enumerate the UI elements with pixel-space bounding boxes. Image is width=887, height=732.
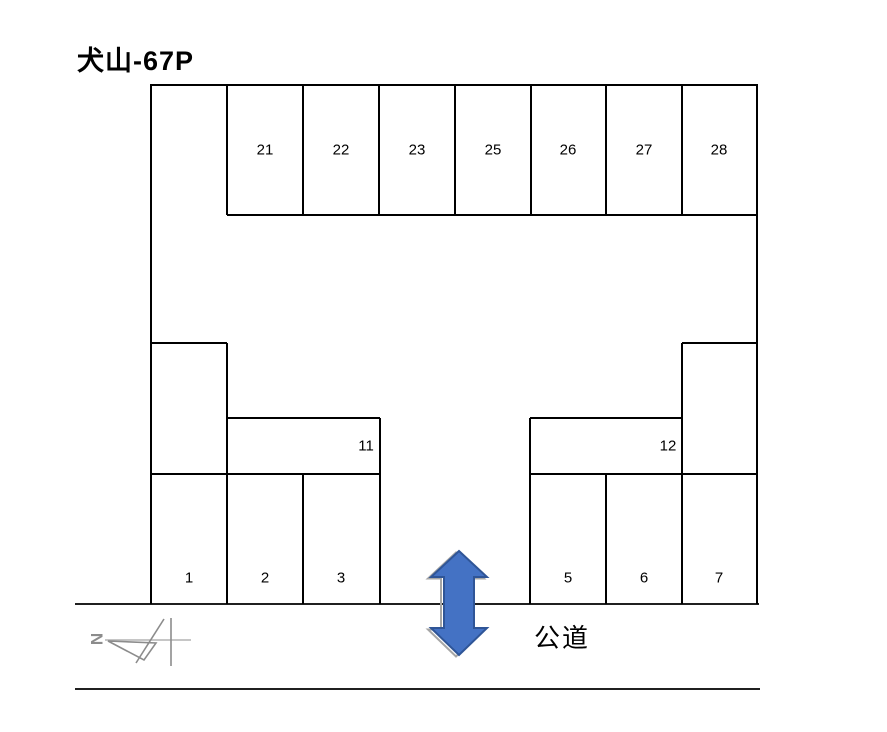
compass-north-letter: N (88, 633, 107, 645)
diagram-canvas: N (0, 0, 887, 732)
space-label-27: 27 (636, 142, 653, 159)
space-label-2: 2 (261, 570, 269, 587)
space-label-23: 23 (409, 142, 426, 159)
parking-lot-diagram: N 犬山-67P 21 22 23 25 26 27 28 11 12 1 2 … (0, 0, 887, 732)
compass-diagonal-line (136, 619, 164, 663)
road-label: 公道 (534, 618, 590, 655)
space-label-1: 1 (185, 570, 193, 587)
space-label-26: 26 (560, 142, 577, 159)
north-compass: N (88, 618, 192, 666)
space-label-28: 28 (711, 142, 728, 159)
left-block-grid (151, 343, 380, 604)
space-label-21: 21 (257, 142, 274, 159)
space-label-25: 25 (485, 142, 502, 159)
space-label-6: 6 (640, 570, 648, 587)
space-label-11: 11 (358, 438, 374, 455)
space-label-7: 7 (715, 570, 723, 587)
page-title: 犬山-67P (77, 39, 194, 78)
space-label-12: 12 (660, 438, 677, 455)
space-label-22: 22 (333, 142, 350, 159)
space-label-3: 3 (337, 570, 345, 587)
right-block-grid (530, 343, 757, 604)
space-label-5: 5 (564, 570, 572, 587)
